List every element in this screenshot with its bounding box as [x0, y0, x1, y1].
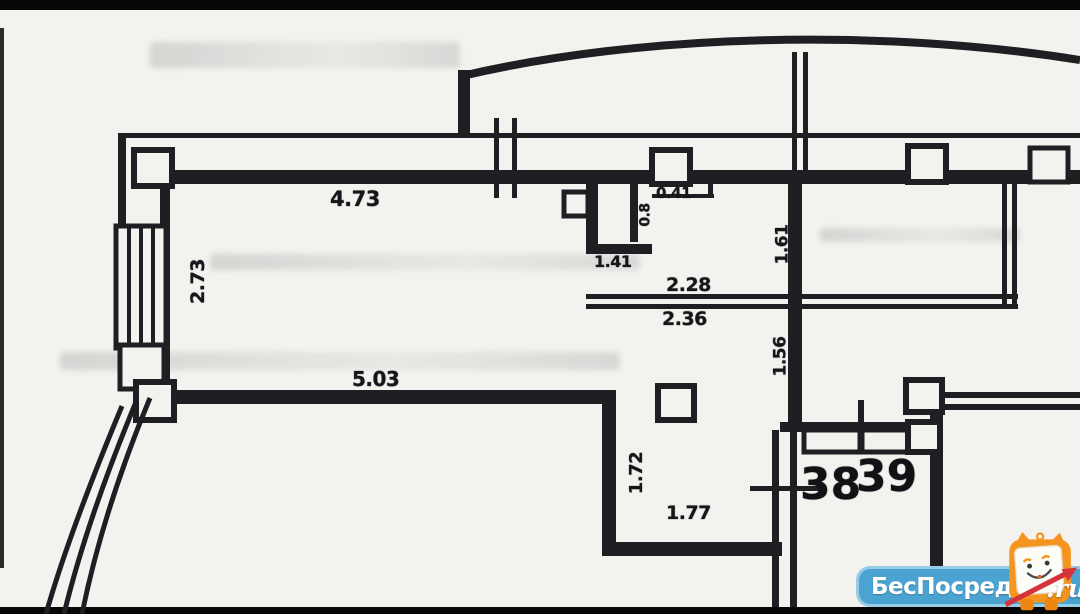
walls-group — [118, 52, 1080, 607]
screenshot-root: 4.73 2.73 5.03 1.41 0.41 0.8 2.28 2.36 1… — [0, 0, 1080, 614]
floorplan-drawing — [0, 0, 1080, 614]
dim-bottom-left-wall: 5.03 — [352, 369, 399, 389]
dim-wc-door: 0.41 — [656, 186, 691, 201]
room-number-39: 39 — [856, 455, 917, 499]
balcony-arc — [462, 40, 1080, 76]
window-hatch — [116, 226, 166, 389]
dim-right-wall-upper: 1.61 — [774, 225, 791, 265]
dim-hall-outer-width: 2.36 — [662, 310, 707, 329]
dim-right-wall-lower: 1.56 — [772, 337, 789, 377]
watermark-tld-text: .ru — [1046, 574, 1080, 603]
dim-hall-inner-width: 2.28 — [666, 276, 711, 295]
curved-exterior-lines — [46, 398, 150, 614]
dim-wc-side: 0.8 — [639, 203, 653, 226]
dim-step-height: 1.72 — [628, 452, 646, 494]
room-number-38: 38 — [800, 463, 861, 507]
dim-step-width: 1.77 — [666, 504, 711, 523]
dim-top-wall: 4.73 — [330, 189, 380, 210]
dim-wc-width: 1.41 — [594, 254, 631, 270]
dim-left-wall: 2.73 — [189, 259, 208, 304]
